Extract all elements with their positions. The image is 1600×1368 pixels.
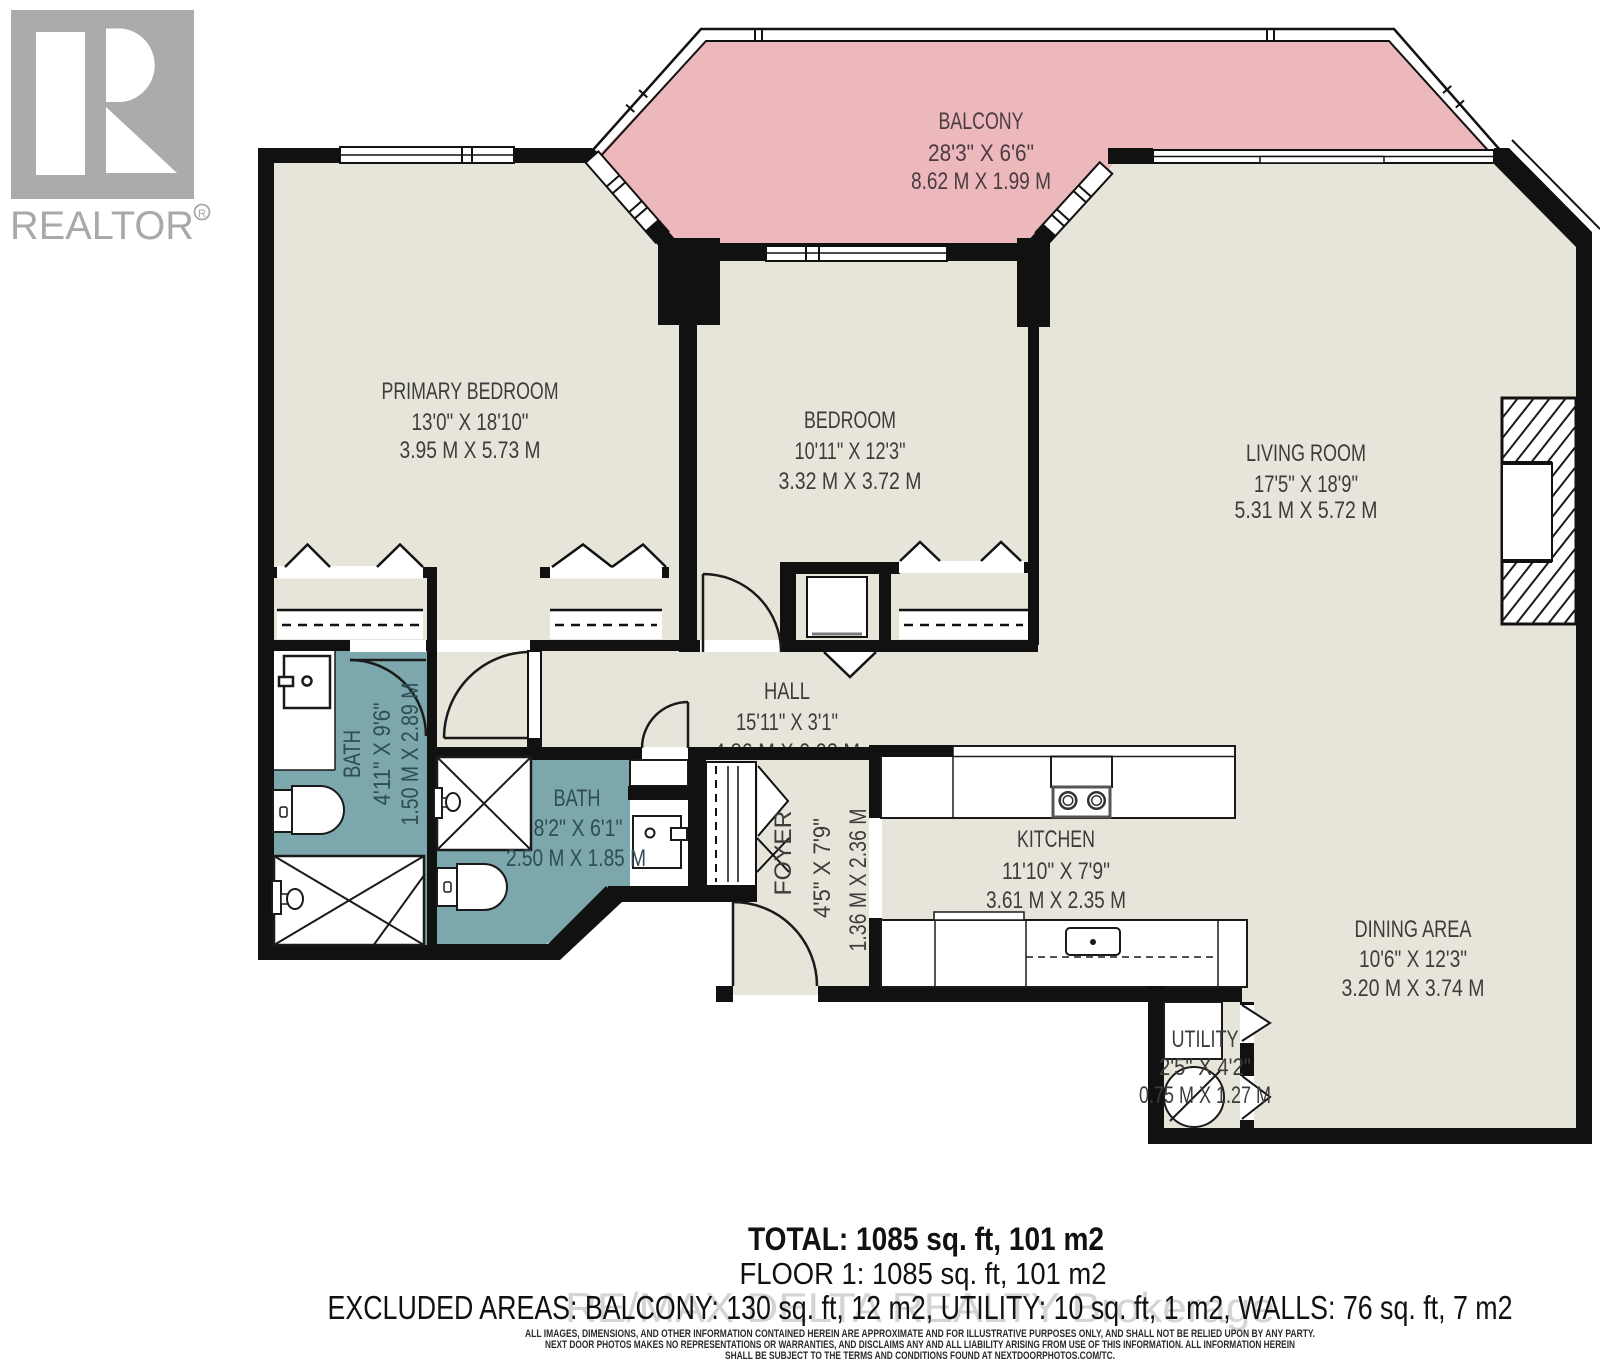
svg-text:DINING AREA: DINING AREA: [1355, 916, 1472, 943]
svg-text:28'3" X 6'6": 28'3" X 6'6": [928, 140, 1034, 167]
svg-text:UTILITY: UTILITY: [1172, 1026, 1239, 1053]
svg-text:TOTAL: 1085 sq. ft, 101 m2: TOTAL: 1085 sq. ft, 101 m2: [748, 1221, 1104, 1257]
svg-text:10'6" X 12'3": 10'6" X 12'3": [1359, 946, 1467, 973]
svg-text:2'5" X 4'2": 2'5" X 4'2": [1159, 1054, 1251, 1081]
svg-text:1.36 M X 2.36 M: 1.36 M X 2.36 M: [845, 809, 872, 952]
svg-text:SHALL BE SUBJECT TO THE TERMS: SHALL BE SUBJECT TO THE TERMS AND CONDIT…: [725, 1350, 1115, 1362]
svg-text:BATH: BATH: [339, 730, 366, 778]
svg-text:LIVING ROOM: LIVING ROOM: [1246, 440, 1366, 467]
svg-text:3.32 M X 3.72 M: 3.32 M X 3.72 M: [779, 468, 922, 495]
svg-text:10'11" X 12'3": 10'11" X 12'3": [795, 438, 906, 465]
svg-text:8.62 M X 1.99 M: 8.62 M X 1.99 M: [911, 168, 1051, 195]
svg-text:3.61 M X 2.35 M: 3.61 M X 2.35 M: [986, 887, 1126, 914]
svg-text:4'11" X 9'6": 4'11" X 9'6": [369, 703, 396, 806]
svg-text:FOYER: FOYER: [770, 811, 797, 896]
svg-text:3.95 M X 5.73 M: 3.95 M X 5.73 M: [400, 437, 541, 464]
svg-text:PRIMARY BEDROOM: PRIMARY BEDROOM: [382, 378, 559, 405]
svg-text:5.31 M X 5.72 M: 5.31 M X 5.72 M: [1235, 497, 1378, 524]
svg-text:HALL: HALL: [764, 678, 810, 705]
svg-text:REALTOR: REALTOR: [10, 204, 194, 248]
svg-text:KITCHEN: KITCHEN: [1017, 826, 1095, 853]
svg-text:8'2" X 6'1": 8'2" X 6'1": [534, 815, 623, 842]
svg-text:11'10" X 7'9": 11'10" X 7'9": [1002, 858, 1110, 885]
svg-text:1.50 M X 2.89 M: 1.50 M X 2.89 M: [397, 683, 424, 826]
svg-text:17'5" X 18'9": 17'5" X 18'9": [1254, 471, 1358, 498]
svg-text:2.50 M X 1.85 M: 2.50 M X 1.85 M: [506, 845, 646, 872]
svg-text:15'11" X 3'1": 15'11" X 3'1": [736, 709, 838, 736]
svg-text:BALCONY: BALCONY: [939, 108, 1024, 135]
svg-text:BEDROOM: BEDROOM: [804, 407, 896, 434]
svg-text:3.20 M X 3.74 M: 3.20 M X 3.74 M: [1342, 975, 1485, 1002]
svg-text:FLOOR 1: 1085 sq. ft, 101 m2: FLOOR 1: 1085 sq. ft, 101 m2: [740, 1256, 1107, 1291]
svg-text:BATH: BATH: [554, 785, 601, 812]
svg-text:4'5" X 7'9": 4'5" X 7'9": [809, 818, 836, 918]
svg-text:EXCLUDED AREAS: BALCONY: 130 s: EXCLUDED AREAS: BALCONY: 130 sq. ft, 12 …: [328, 1289, 1513, 1326]
svg-text:R: R: [198, 208, 206, 220]
svg-text:13'0" X 18'10": 13'0" X 18'10": [412, 409, 529, 436]
svg-text:0.75 M X 1.27 M: 0.75 M X 1.27 M: [1139, 1082, 1271, 1109]
